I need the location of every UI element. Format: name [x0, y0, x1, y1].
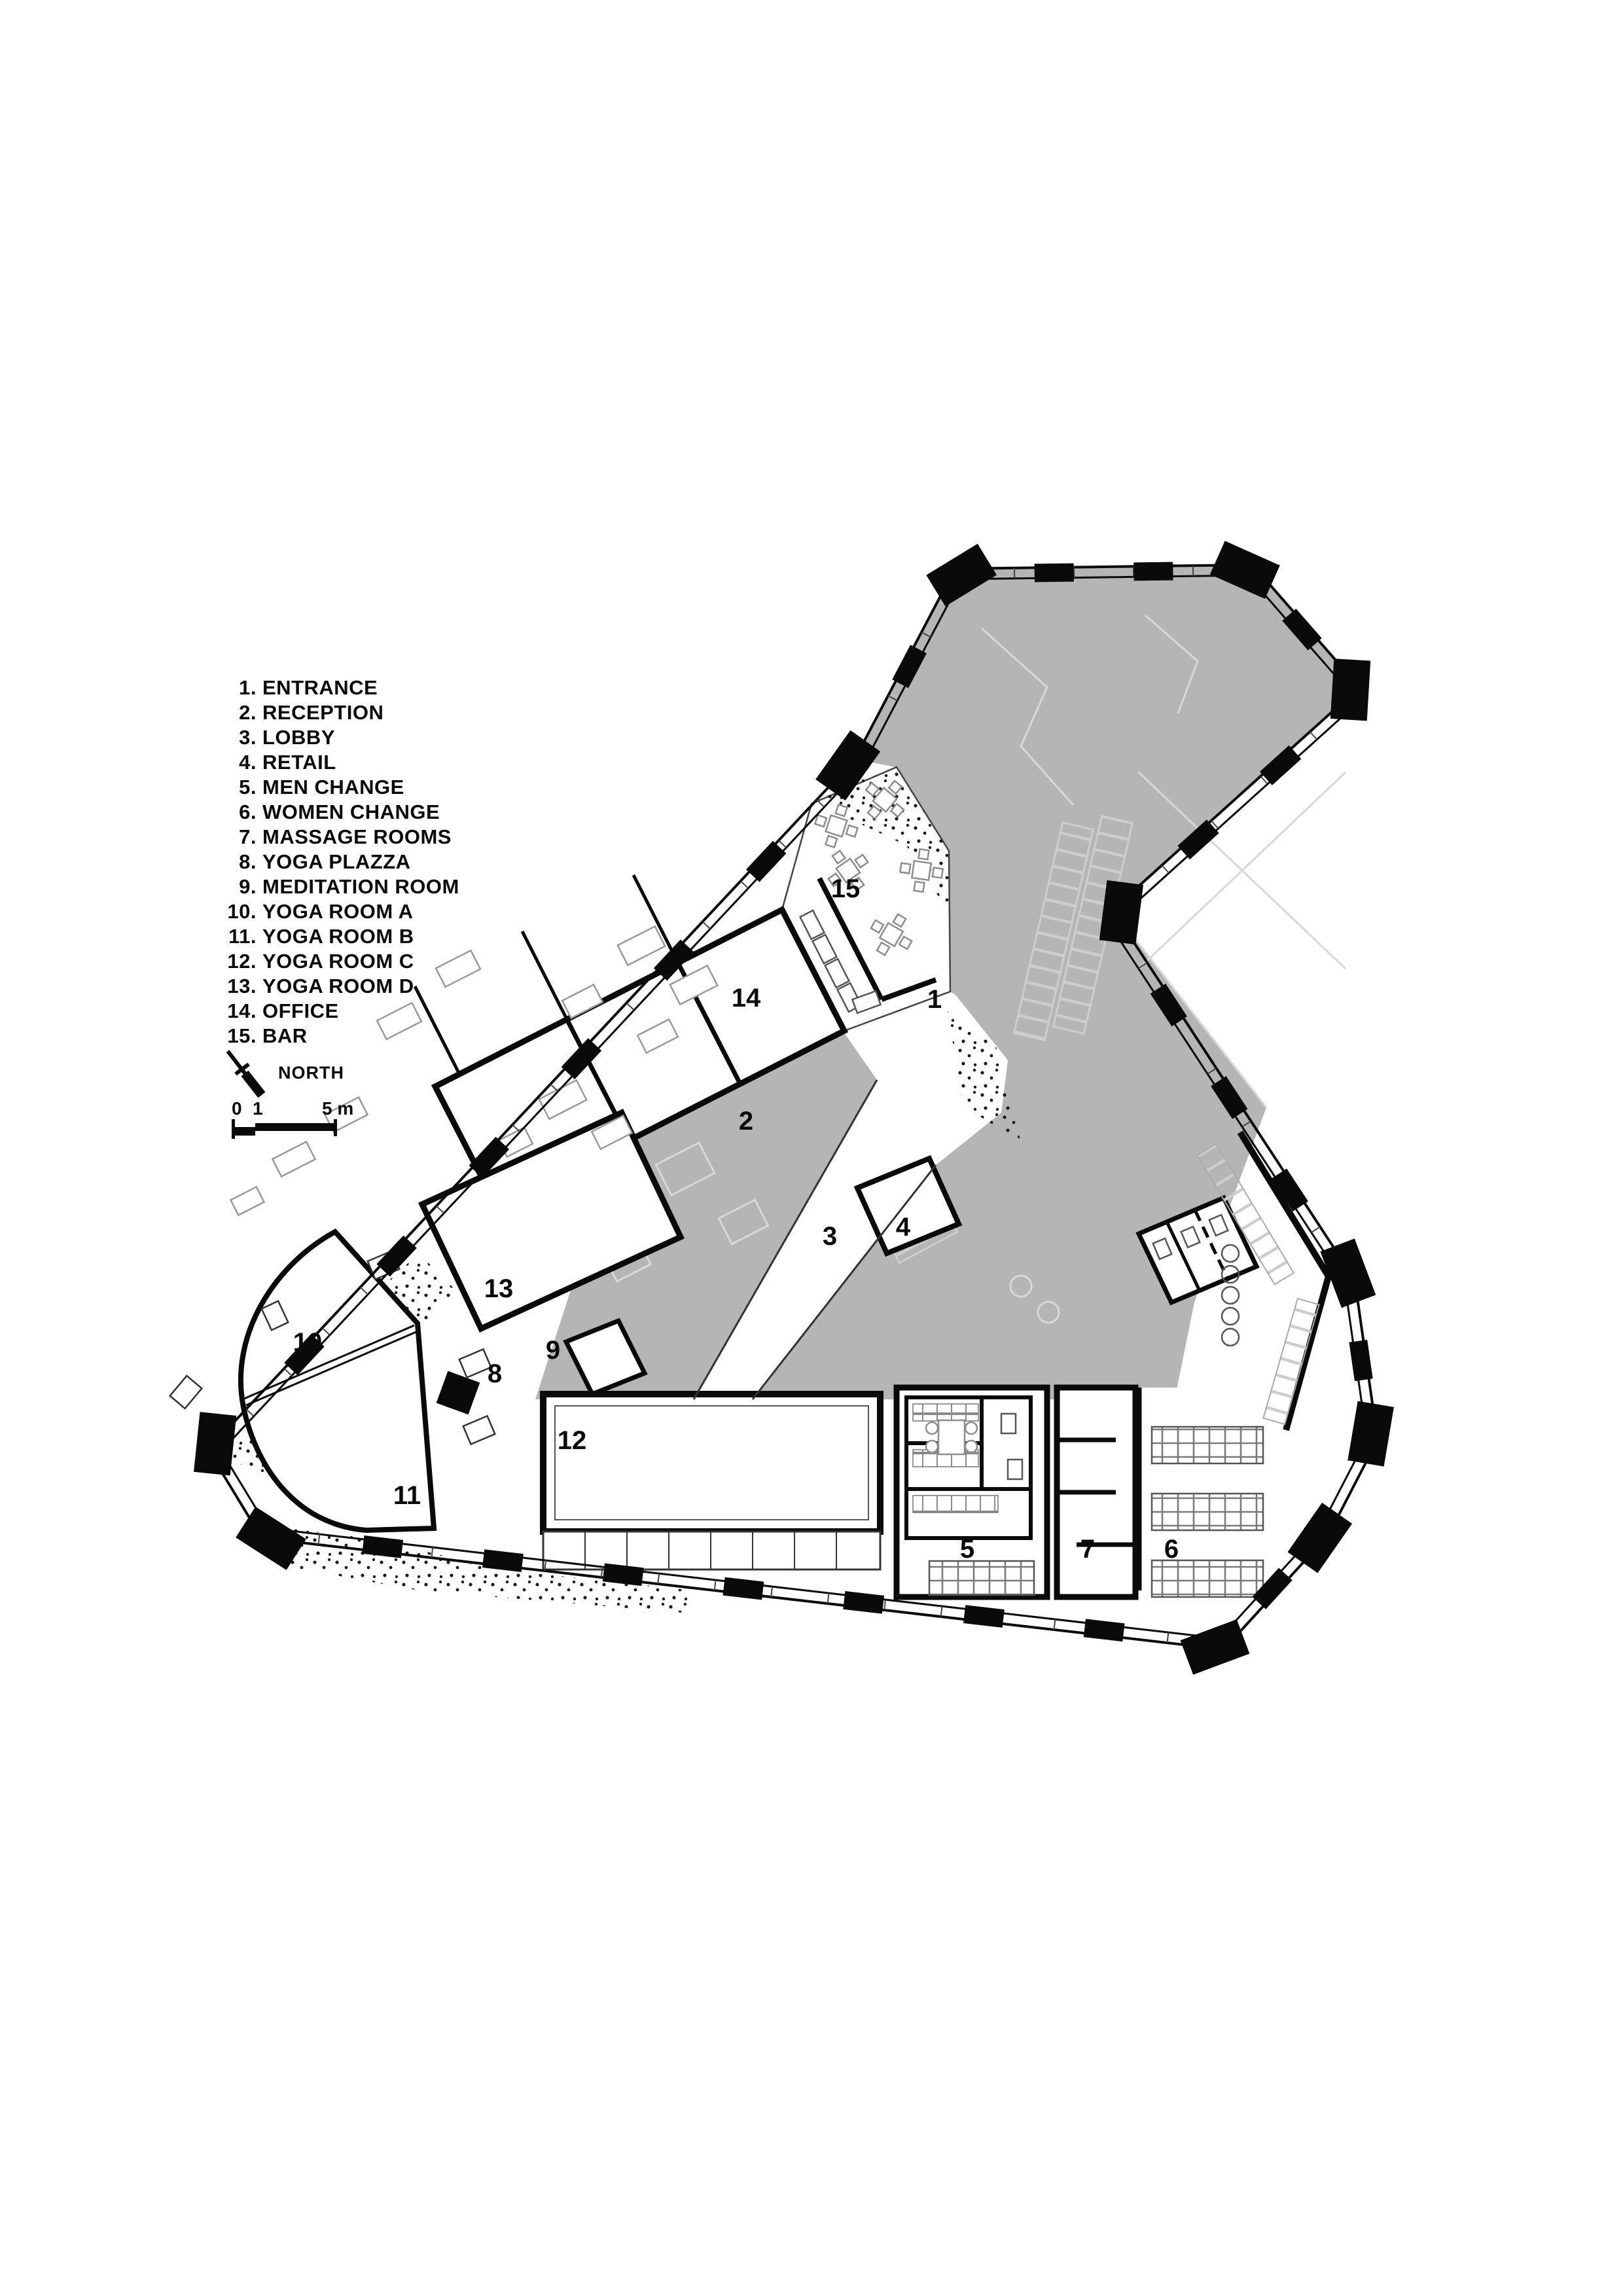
legend-item-number: 12.: [216, 950, 257, 973]
legend-item-10: 10.YOGA ROOM A: [216, 899, 459, 924]
scale-one: 1: [253, 1098, 263, 1119]
facade-pier: [723, 1577, 764, 1600]
legend-item-label: OFFICE: [262, 999, 339, 1023]
facade-pier: [746, 841, 786, 882]
label-yoga-a: 10: [293, 1328, 323, 1357]
facade-mullion: [779, 840, 787, 848]
room-yoga-c: [543, 1394, 880, 1532]
label-men-change: 5: [960, 1535, 974, 1564]
facade-mullion: [884, 1600, 885, 1610]
facade-pier: [1349, 1340, 1372, 1381]
facade-corner-block: [1099, 880, 1143, 944]
facade-pier: [1084, 1619, 1125, 1641]
legend-item-label: RETAIL: [262, 751, 336, 774]
legend-item-label: MEN CHANGE: [262, 776, 404, 799]
label-reception: 2: [739, 1107, 753, 1136]
legend-item-5: 5.MEN CHANGE: [216, 775, 459, 800]
north-label: NORTH: [278, 1063, 344, 1083]
legend-item-number: 3.: [216, 726, 257, 749]
facade-mullion: [1311, 1227, 1320, 1232]
facade-pier: [1133, 562, 1173, 581]
floor-plan-sheet: 1 2 3 4 5 6 7 8 9 10 11 12 13 14 15 1.EN…: [0, 0, 1623, 2296]
page: { "legend": { "items": [ {"num":"1.","la…: [0, 0, 1623, 2296]
facade-corner-block: [1181, 1619, 1250, 1675]
legend-item-11: 11.YOGA ROOM B: [216, 924, 459, 949]
facade-mullion: [771, 1587, 772, 1597]
legend-item-number: 1.: [216, 676, 257, 700]
room-massage: [1057, 1388, 1135, 1597]
legend-item-7: 7.MASSAGE ROOMS: [216, 825, 459, 850]
legend-item-number: 5.: [216, 776, 257, 799]
facade-corner-block: [1288, 1503, 1353, 1573]
legend-item-number: 11.: [216, 925, 257, 948]
legend-item-13: 13.YOGA ROOM D: [216, 974, 459, 999]
legend-item-9: 9.MEDITATION ROOM: [216, 874, 459, 899]
facade-pier: [963, 1605, 1005, 1628]
legend-item-label: YOGA ROOM B: [262, 925, 414, 948]
room-women-change: [1139, 1388, 1270, 1597]
legend-item-number: 9.: [216, 875, 257, 899]
legend-item-number: 6.: [216, 800, 257, 824]
legend-item-label: MEDITATION ROOM: [262, 875, 459, 899]
room-men-change: [897, 1388, 1047, 1597]
facade-mullion: [741, 881, 749, 888]
label-bar: 15: [831, 874, 861, 903]
facade-corner-block: [1347, 1401, 1394, 1467]
scale-bar-1-5: [255, 1123, 335, 1131]
legend-item-number: 13.: [216, 975, 257, 998]
label-retail: 4: [896, 1213, 911, 1242]
legend-item-number: 14.: [216, 999, 257, 1023]
legend-item-4: 4.RETAIL: [216, 750, 459, 775]
legend-item-1: 1.ENTRANCE: [216, 675, 459, 700]
label-yoga-b: 11: [393, 1481, 421, 1510]
legend-item-12: 12.YOGA ROOM C: [216, 949, 459, 974]
facade-corner-block: [1320, 1238, 1376, 1308]
legend-item-label: YOGA ROOM D: [262, 975, 414, 998]
legend-item-label: YOGA PLAZZA: [262, 850, 411, 874]
legend-item-label: WOMEN CHANGE: [262, 800, 440, 824]
label-office: 14: [732, 984, 761, 1013]
legend-item-number: 10.: [216, 900, 257, 924]
scale-tick-right: [334, 1119, 337, 1136]
facade-mullion: [1168, 1632, 1169, 1643]
facade-mullion: [703, 922, 711, 929]
legend-item-number: 2.: [216, 701, 257, 725]
facade-mullion: [828, 1593, 829, 1604]
facade-pier: [843, 1591, 884, 1614]
room-yoga-c-storage: [543, 1532, 880, 1570]
facade-mullion: [658, 1573, 659, 1584]
facade-mullion: [1310, 732, 1317, 740]
legend-item-label: LOBBY: [262, 726, 335, 749]
scale-block-0-1: [233, 1127, 255, 1136]
legend-item-label: ENTRANCE: [262, 676, 378, 700]
legend: 1.ENTRANCE 2.RECEPTION 3.LOBBY 4.RETAIL …: [216, 675, 459, 1049]
facade-corner-block: [194, 1412, 236, 1475]
label-massage: 7: [1080, 1535, 1095, 1564]
facade-mullion: [715, 1580, 716, 1590]
label-lobby: 3: [823, 1222, 837, 1251]
label-yoga-c: 12: [558, 1426, 587, 1455]
legend-item-3: 3.LOBBY: [216, 725, 459, 750]
scale-five-m: 5 m: [322, 1098, 353, 1119]
facade-mullion: [1162, 865, 1169, 873]
label-yoga-plaza: 8: [488, 1359, 502, 1388]
legend-item-2: 2.RECEPTION: [216, 700, 459, 725]
legend-item-label: YOGA ROOM A: [262, 900, 414, 924]
label-meditation: 9: [546, 1336, 560, 1365]
legend-item-14: 14.OFFICE: [216, 999, 459, 1024]
legend-item-6: 6.WOMEN CHANGE: [216, 800, 459, 825]
legend-item-number: 8.: [216, 850, 257, 874]
scale-zero: 0: [232, 1098, 242, 1119]
legend-item-label: MASSAGE ROOMS: [262, 825, 452, 849]
legend-item-8: 8.YOGA PLAZZA: [216, 850, 459, 874]
facade-mullion: [941, 1606, 942, 1617]
legend-item-number: 7.: [216, 825, 257, 849]
facade-pier: [1035, 564, 1074, 583]
facade-corner-block: [1330, 658, 1370, 721]
pillar-yoga-plaza: [437, 1371, 480, 1415]
legend-item-number: 4.: [216, 751, 257, 774]
legend-item-label: YOGA ROOM C: [262, 950, 414, 973]
label-yoga-d: 13: [484, 1274, 514, 1303]
label-women-change: 6: [1164, 1535, 1179, 1564]
floor-plan-drawing: 1 2 3 4 5 6 7 8 9 10 11 12 13 14 15: [0, 0, 1623, 2296]
label-entrance: 1: [927, 985, 942, 1014]
scale-bar: 0 1 5 m: [223, 1098, 393, 1138]
legend-item-label: RECEPTION: [262, 701, 383, 725]
facade-mullion: [1054, 1619, 1056, 1630]
